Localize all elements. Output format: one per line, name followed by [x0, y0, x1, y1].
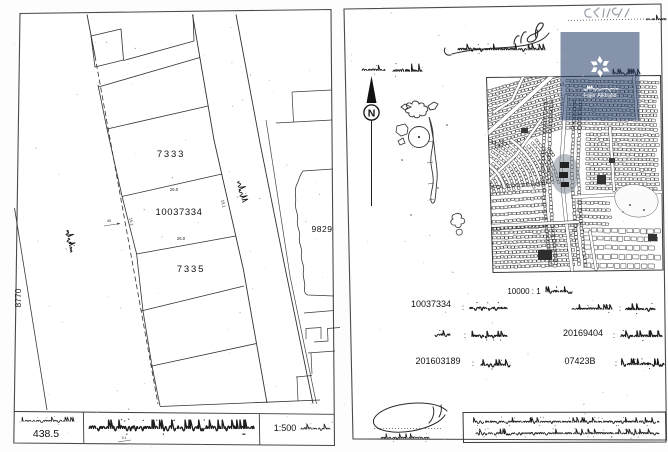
svg-text:10037334: 10037334: [155, 207, 202, 218]
svg-text:201603189: 201603189: [415, 356, 460, 366]
svg-text:8770: 8770: [13, 288, 23, 307]
svg-text:Fajer Alkhalid: Fajer Alkhalid: [583, 93, 616, 99]
svg-text::: :: [462, 303, 464, 312]
svg-text:9.1: 9.1: [122, 436, 127, 440]
svg-text:9829: 9829: [312, 224, 333, 234]
svg-text::: :: [615, 359, 617, 368]
svg-text:7333: 7333: [157, 149, 185, 160]
svg-text:10000 : 1: 10000 : 1: [507, 287, 541, 296]
svg-text::: :: [619, 304, 621, 313]
svg-text:N: N: [368, 108, 376, 120]
svg-text:1:500: 1:500: [274, 423, 297, 433]
svg-text::: :: [613, 331, 615, 340]
svg-text:26.0: 26.0: [170, 187, 179, 192]
svg-text::: :: [464, 331, 466, 340]
svg-text:20169404: 20169404: [563, 328, 603, 338]
svg-text:07423B: 07423B: [564, 356, 595, 366]
svg-text::: :: [472, 359, 474, 368]
svg-text:45: 45: [107, 219, 111, 223]
svg-text:438.5: 438.5: [33, 428, 59, 440]
svg-text:7335: 7335: [177, 264, 205, 275]
svg-text:10037334: 10037334: [411, 299, 451, 309]
svg-text:26.0: 26.0: [177, 236, 186, 241]
